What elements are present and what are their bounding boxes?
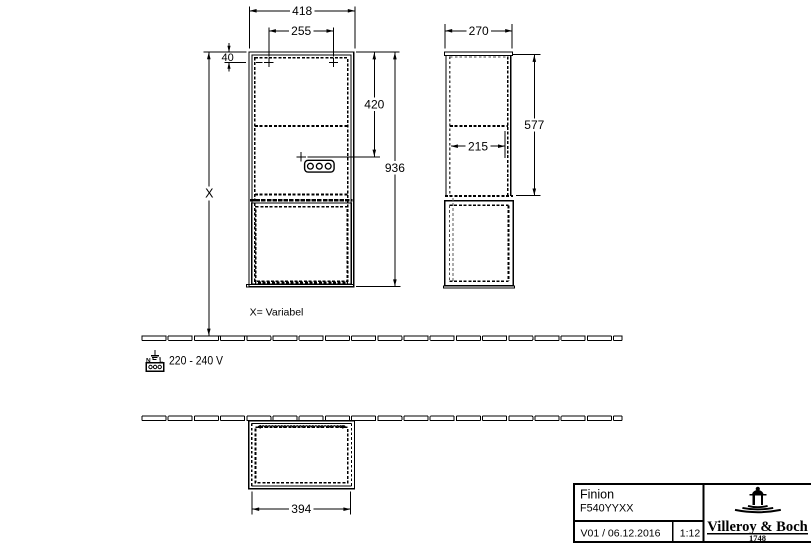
svg-text:40: 40 [221, 52, 233, 64]
svg-text:215: 215 [468, 140, 488, 154]
svg-text:394: 394 [291, 502, 311, 516]
svg-text:1:12: 1:12 [680, 527, 701, 539]
svg-text:F540YYXX: F540YYXX [580, 502, 633, 514]
svg-text:220 - 240 V: 220 - 240 V [169, 353, 223, 367]
svg-text:270: 270 [469, 24, 489, 38]
svg-text:255: 255 [291, 24, 311, 38]
svg-text:Finion: Finion [580, 488, 614, 502]
svg-text:418: 418 [292, 4, 312, 18]
svg-text:1748: 1748 [749, 533, 766, 543]
svg-text:577: 577 [524, 118, 544, 132]
svg-text:936: 936 [385, 161, 405, 175]
svg-text:V01 / 06.12.2016: V01 / 06.12.2016 [581, 527, 661, 539]
svg-text:420: 420 [364, 98, 384, 112]
svg-text:X= Variabel: X= Variabel [250, 306, 304, 318]
svg-text:X: X [205, 187, 214, 201]
